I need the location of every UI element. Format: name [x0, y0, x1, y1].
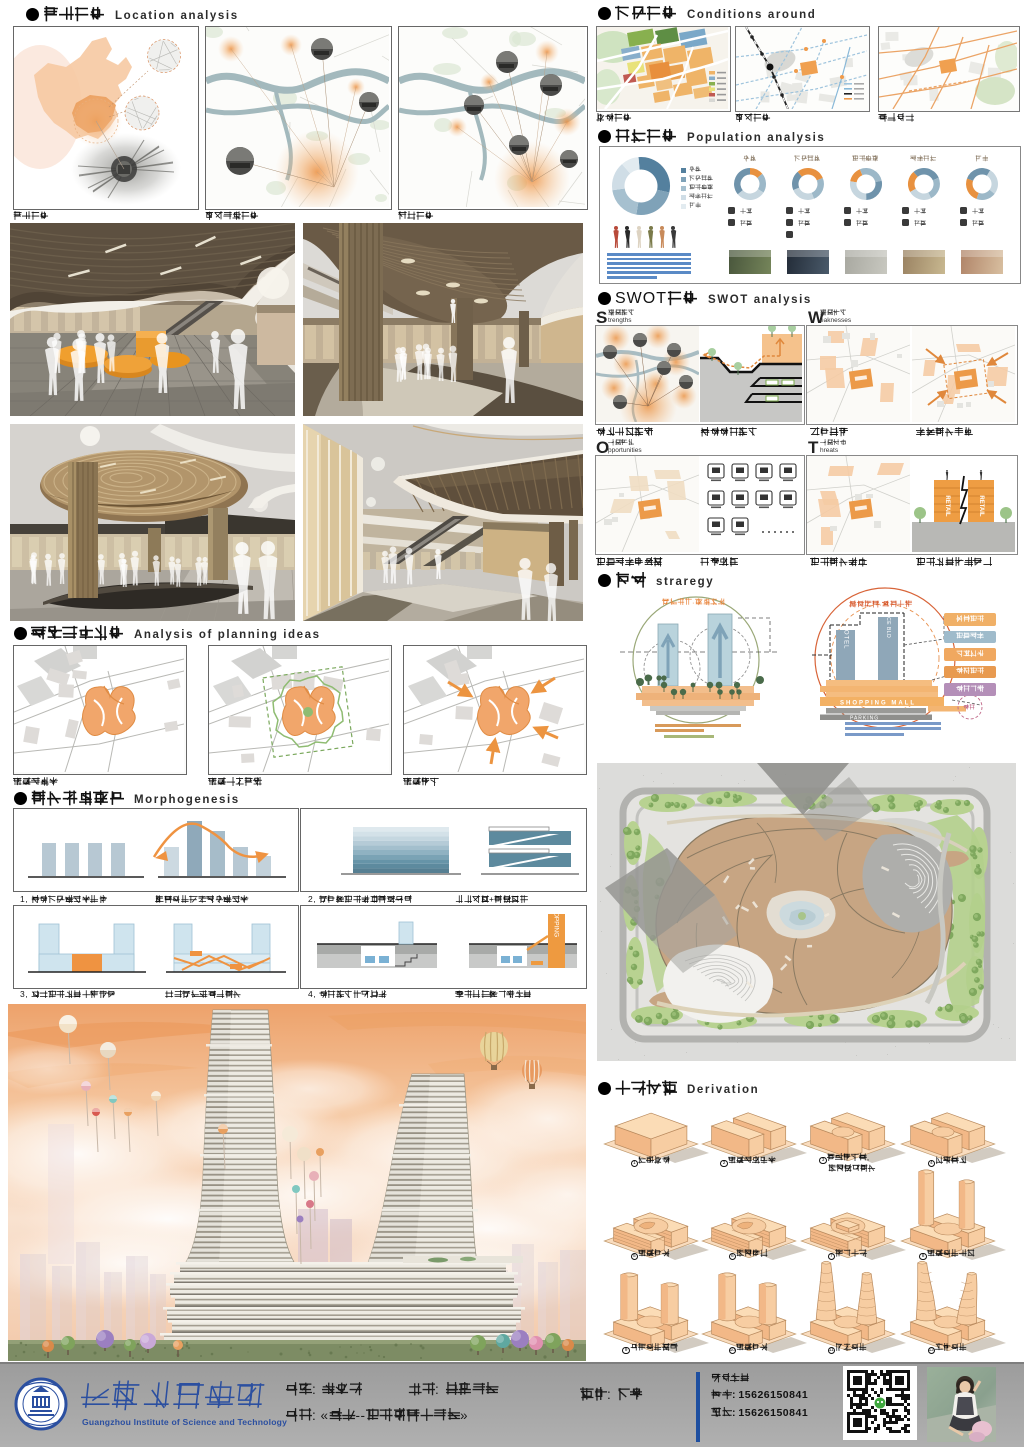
svg-text:PARKING: PARKING [850, 716, 879, 722]
svg-text:SHOPPING: SHOPPING [553, 906, 560, 937]
svg-text:RETAIL: RETAIL [944, 495, 950, 517]
svg-text:HOTEL: HOTEL [843, 624, 849, 649]
svg-text:SHOPPING MALL: SHOPPING MALL [840, 701, 916, 707]
svg-text:RETAIL: RETAIL [978, 495, 984, 517]
